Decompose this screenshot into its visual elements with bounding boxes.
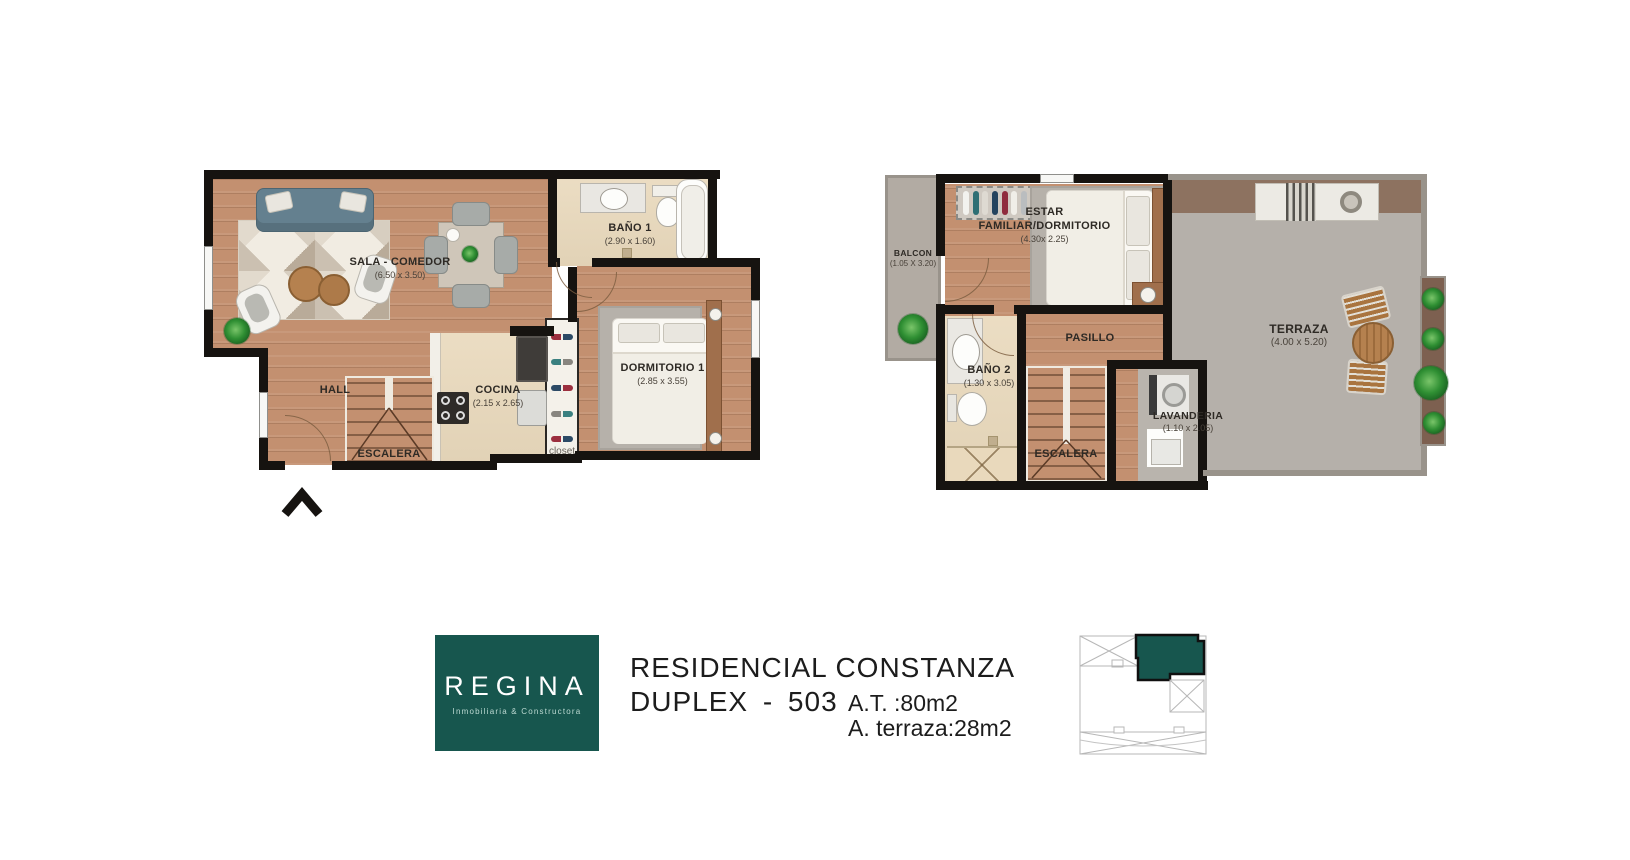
wall [510, 326, 554, 336]
room-label-sala: SALA - COMEDOR (6.50 x 3.50) [330, 256, 470, 281]
clothes-item [963, 191, 969, 215]
wall [332, 461, 497, 470]
stairs-marks [1028, 368, 1105, 480]
wall [936, 481, 1208, 490]
wall [575, 451, 760, 460]
window [751, 300, 760, 358]
room-label-estar: ESTAR FAMILIAR/DORMITORIO (4.30x 2.25) [972, 206, 1117, 245]
wall [592, 258, 717, 267]
room-label-bano1: BAÑO 1 (2.90 x 1.60) [575, 222, 685, 247]
wall [1163, 174, 1172, 369]
room-label-balcon: BALCON (1.05 X 3.20) [868, 248, 958, 269]
planter-plant-icon [1414, 366, 1448, 400]
bed-pillow [618, 323, 660, 343]
sink-basin [600, 188, 628, 210]
planter-plant-icon [1423, 412, 1445, 434]
wall [204, 170, 720, 179]
wall [1017, 305, 1026, 490]
logo-brand-text: REGINA [444, 671, 590, 702]
shoes-row [551, 436, 573, 442]
wall [1107, 360, 1207, 369]
planter-plant-icon [1422, 288, 1444, 310]
room-label-escalera1: ESCALERA [344, 448, 434, 462]
shower-floor [947, 446, 1017, 482]
wall [936, 174, 945, 256]
shoes-row [551, 385, 573, 391]
area-total: A.T. :80m2 [848, 690, 958, 717]
dining-chair [452, 202, 490, 226]
wall [1026, 305, 1166, 314]
area-terrace: A. terraza:28m2 [848, 715, 1012, 742]
terrace-chair [1346, 359, 1388, 396]
dining-chair [494, 236, 518, 274]
shoes-row [551, 334, 573, 340]
washer-panel [1149, 375, 1157, 415]
shoes-row [551, 411, 573, 417]
nightstand-lamp [1140, 287, 1156, 303]
floorplan-sheet: SALA - COMEDOR (6.50 x 3.50) BAÑO 1 (2.9… [0, 0, 1630, 860]
bbq-grill [1286, 183, 1316, 221]
stairs [1026, 366, 1107, 482]
room-label-lavanderia: LAVANDERIA (1.10 x 2.05) [1130, 410, 1246, 434]
window [204, 246, 213, 310]
window [1040, 174, 1074, 183]
room-label-escalera2: ESCALERA [1020, 448, 1112, 462]
kitchen-cabinet [516, 336, 548, 382]
terrace-parapet [1421, 174, 1427, 278]
balcon-plant-icon [898, 314, 928, 344]
wall [1107, 360, 1116, 490]
floor-drain [988, 436, 998, 446]
unit-title: DUPLEX - 503 [630, 686, 838, 718]
logo-tagline: Inmobiliaria & Constructora [453, 707, 582, 716]
room-label-hall: HALL [305, 384, 365, 398]
unit-location-keyplan [1078, 632, 1210, 762]
toilet-tank [947, 394, 957, 422]
closet-shelf [545, 318, 579, 458]
wall [936, 304, 945, 490]
room-label-closet: closet [540, 446, 584, 459]
toilet-bowl [957, 392, 987, 426]
terrace-parapet [1203, 470, 1426, 476]
room-label-cocina: COCINA (2.15 x 2.65) [452, 384, 544, 409]
burner [441, 411, 450, 420]
washer-drum [1162, 383, 1186, 407]
shoes-row [551, 359, 573, 365]
room-label-terraza: TERRAZA (4.00 x 5.20) [1240, 322, 1358, 350]
terrace-parapet [1168, 174, 1426, 180]
room-label-dormitorio1: DORMITORIO 1 (2.85 x 3.55) [600, 362, 725, 387]
bed-pillow [1126, 196, 1150, 246]
laundry-sink-basin [1151, 439, 1181, 465]
nightstand-lamp [709, 308, 722, 321]
planter-plant-icon [1422, 328, 1444, 350]
room-label-bano2: BAÑO 2 (1.30 x 3.05) [943, 364, 1035, 389]
regina-logo: REGINA Inmobiliaria & Constructora [435, 635, 599, 751]
bed-pillow [663, 323, 705, 343]
window [259, 392, 268, 438]
burner [456, 411, 465, 420]
plant-icon [224, 318, 250, 344]
wall [548, 170, 557, 267]
wall [708, 170, 717, 267]
burner [441, 396, 450, 405]
terrace-table [1352, 322, 1394, 364]
nightstand-lamp [709, 432, 722, 445]
entry-arrow-icon [280, 486, 324, 518]
wall [936, 305, 994, 314]
room-label-pasillo: PASILLO [1050, 332, 1130, 346]
plate [446, 228, 460, 242]
wall [751, 258, 760, 460]
floor-drain [622, 248, 632, 258]
dining-chair [452, 284, 490, 308]
bbq-sink [1340, 191, 1362, 213]
project-title: RESIDENCIAL CONSTANZA [630, 652, 1015, 684]
wall [259, 461, 285, 470]
